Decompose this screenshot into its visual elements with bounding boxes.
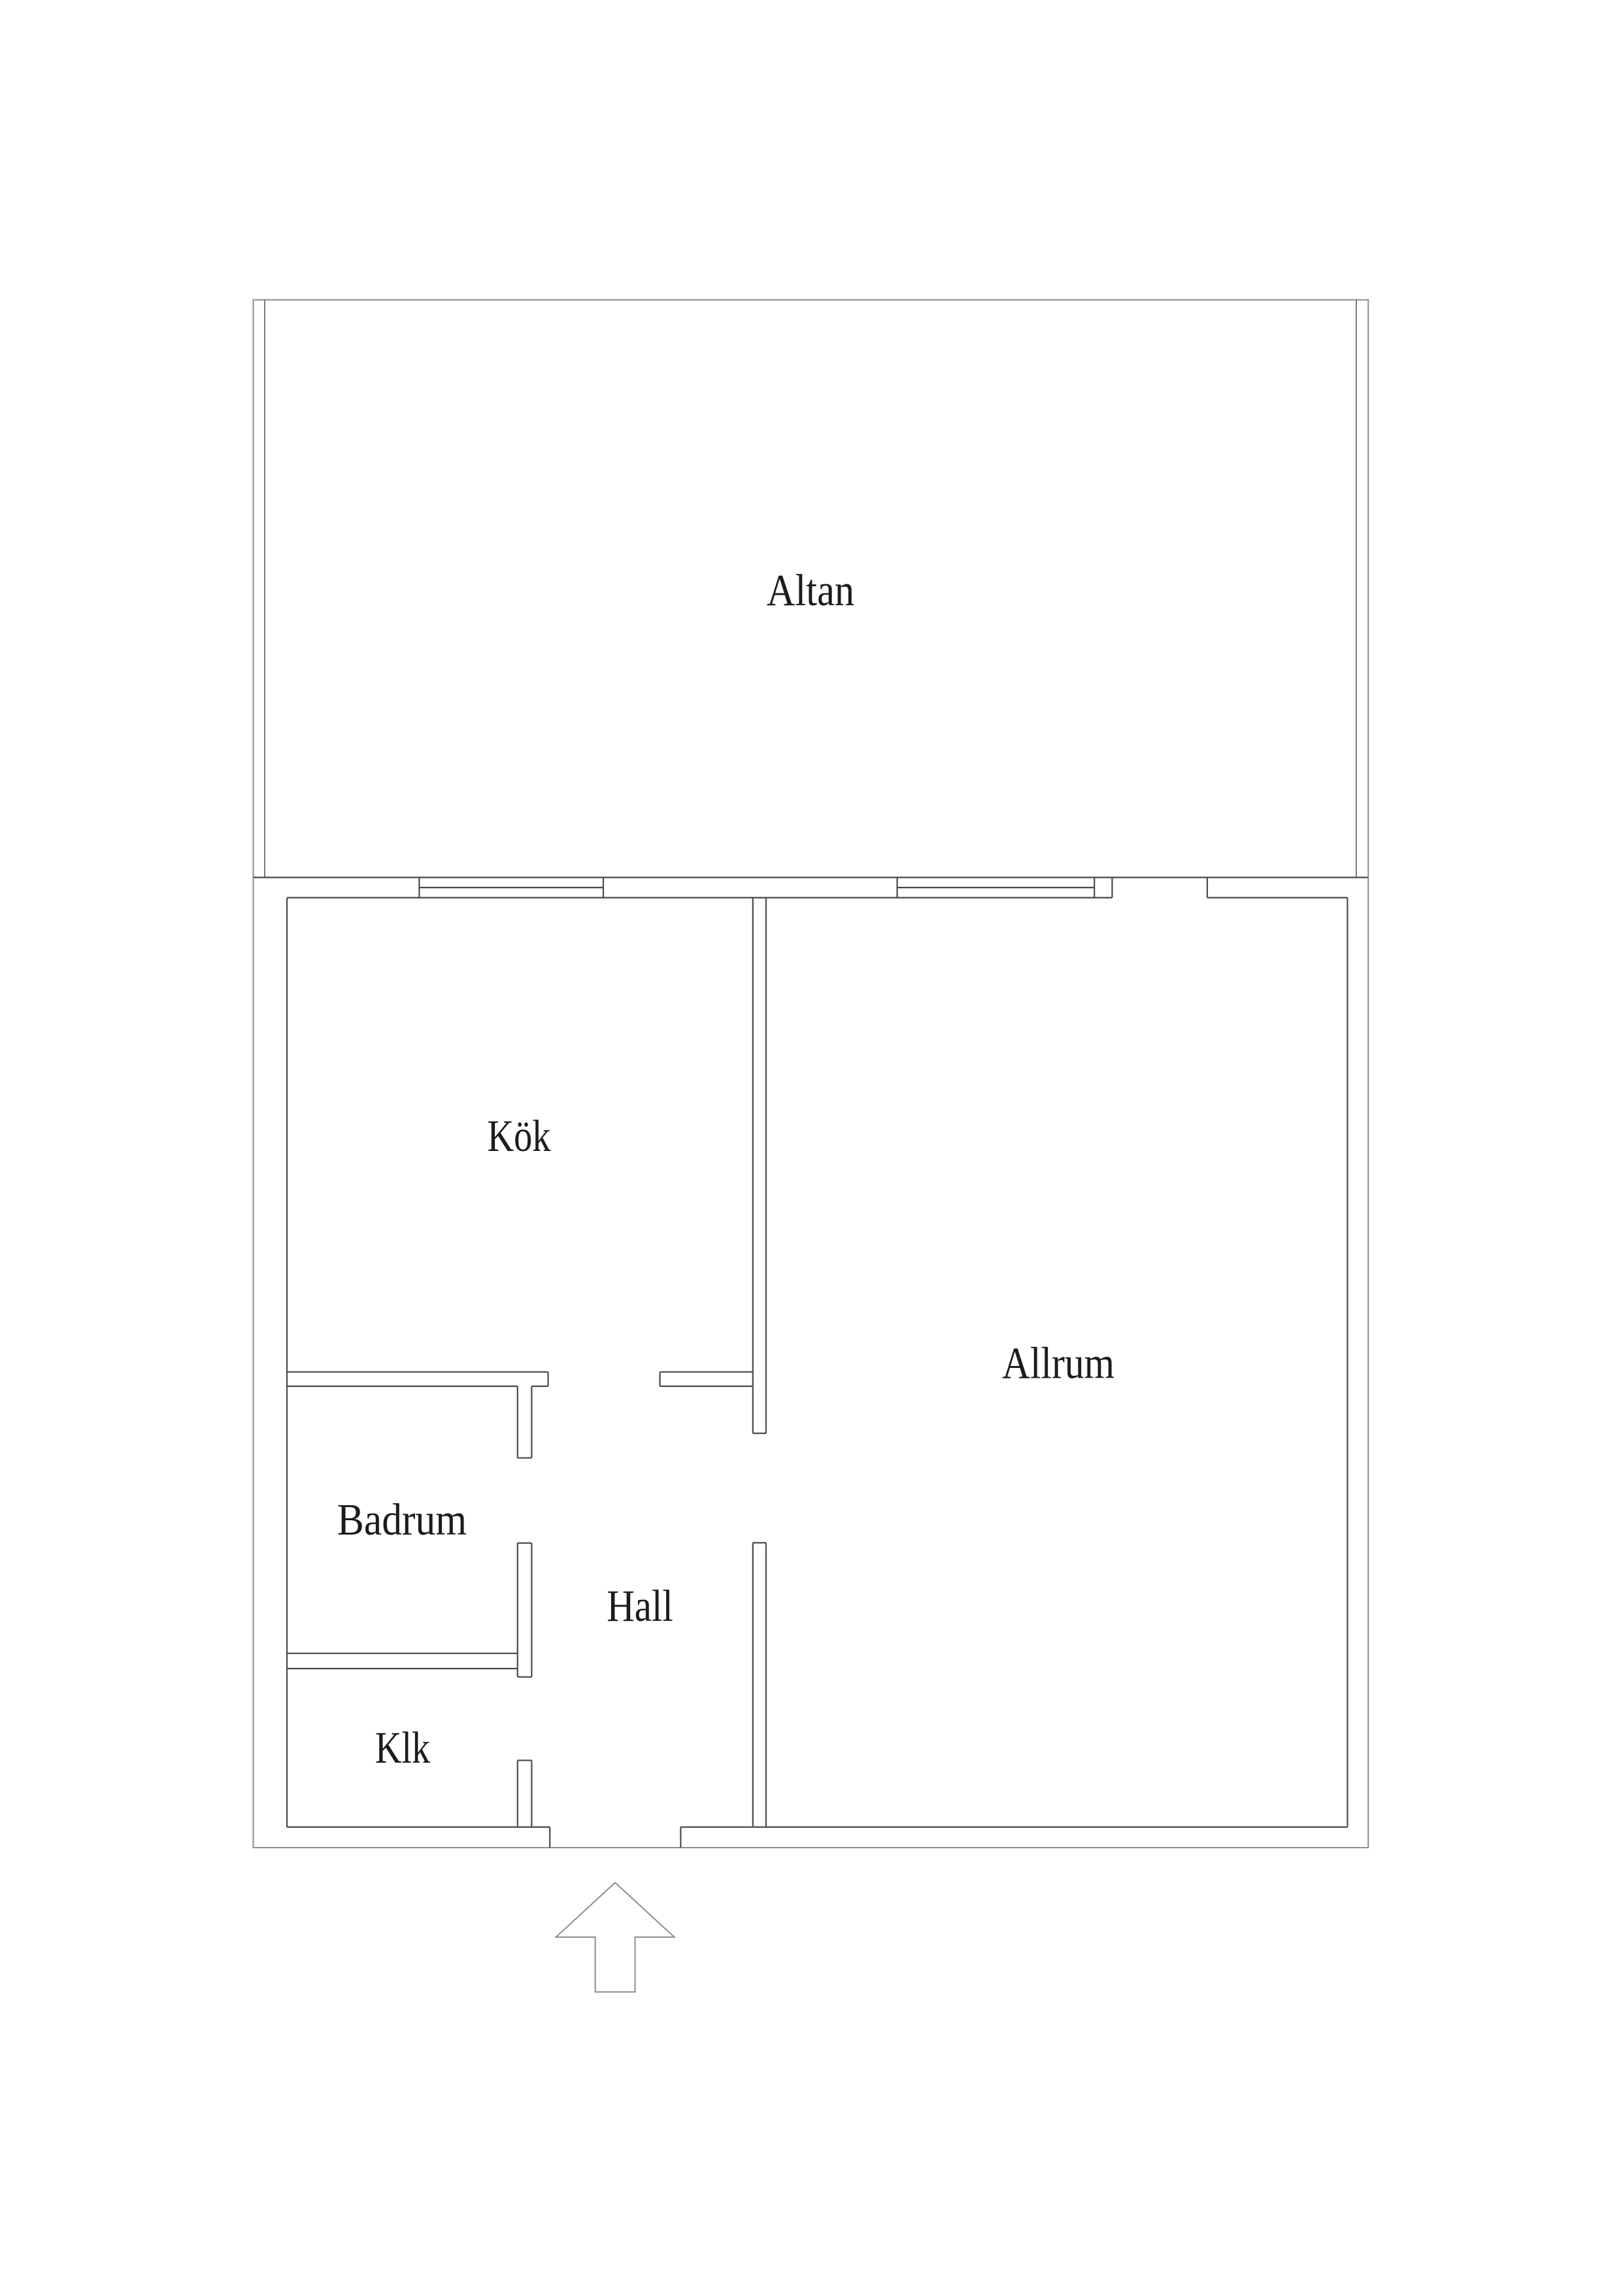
svg-text:Altan: Altan [767,565,854,615]
svg-text:Hall: Hall [607,1581,673,1631]
svg-text:Kök: Kök [487,1111,550,1161]
svg-text:Allrum: Allrum [1002,1339,1114,1388]
svg-text:Badrum: Badrum [337,1495,467,1544]
svg-text:Klk: Klk [375,1723,431,1772]
